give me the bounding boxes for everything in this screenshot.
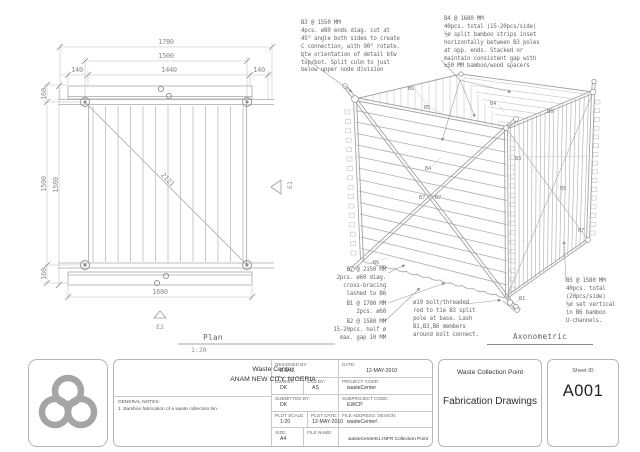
plot-scale-value: 1:20 bbox=[280, 419, 307, 425]
label-b4-top: B4 bbox=[490, 101, 496, 107]
note-b1: B1 @ 1780 MM 2pcs. ø60 bbox=[298, 301, 386, 317]
dim-1500-left: 1500 bbox=[40, 176, 48, 192]
project-code-cell: PROJECT CODE: wasteCenter bbox=[339, 378, 433, 392]
label-b4-mid: B4 bbox=[425, 166, 431, 172]
plan-title: Plan bbox=[203, 333, 223, 342]
label-b6-bottom-left: B6 bbox=[373, 260, 379, 266]
sheet-id-block: Sheet ID A001 bbox=[547, 359, 619, 447]
label-b3-right: B3 bbox=[515, 156, 521, 162]
plan-structure bbox=[58, 86, 274, 285]
drawing-sheet: 1780 1500 140 1440 140 160 1500 1580 160… bbox=[0, 0, 640, 452]
plan-elevation-markers: E2 E1 bbox=[154, 180, 294, 331]
axon-front-left-slats bbox=[356, 111, 507, 285]
plot-scale-cell: PLOT SCALE: 1:20 bbox=[272, 412, 307, 426]
label-b7-bottom-right: B7 bbox=[578, 228, 584, 234]
axonometric-title: Axonometric bbox=[487, 332, 593, 345]
plan-dim-ticks bbox=[44, 44, 275, 300]
subproject-code-label: SUBPROJECT CODE: bbox=[342, 396, 433, 401]
file-address-label: FILE ADDRESS: DESIGN: bbox=[342, 413, 433, 418]
dim-1580: 1580 bbox=[52, 177, 60, 193]
dim-1680: 1680 bbox=[152, 288, 168, 296]
dim-1500-top: 1500 bbox=[158, 52, 174, 60]
label-b5-right: B5 bbox=[560, 186, 566, 192]
general-notes-value: 1. Bamboo fabrication of a waste collect… bbox=[118, 407, 218, 412]
file-address-value: wasteCenter\ bbox=[347, 419, 433, 425]
dim-1440: 1440 bbox=[161, 66, 177, 74]
size-label: SIZE: bbox=[275, 430, 303, 435]
designed-by-value: E.U.U. bbox=[280, 368, 338, 374]
subproject-code-value: EWCP bbox=[347, 402, 433, 408]
general-notes-label: GENERAL NOTES: bbox=[118, 400, 160, 405]
sheet-id-label: Sheet ID bbox=[548, 368, 618, 374]
ckd-by-value: AS bbox=[312, 385, 338, 391]
dim-140-left: 140 bbox=[71, 66, 83, 74]
designed-by-label: DESIGNED BY: bbox=[275, 362, 338, 367]
dim-140-right: 140 bbox=[253, 66, 265, 74]
file-address-cell: FILE ADDRESS: DESIGN: wasteCenter\ bbox=[339, 412, 433, 426]
note-b7: B7 @ 2150 MM 2pcs. ø60 diag. cross-braci… bbox=[298, 267, 386, 299]
ckd-by-label: CKD BY: bbox=[307, 379, 338, 384]
size-value: A4 bbox=[280, 436, 303, 442]
file-name-label: FILE NAME: bbox=[307, 430, 433, 435]
date-cell: DATE: 12-MAY-2010 bbox=[339, 360, 433, 374]
title-block: Waste Center ANAM NEW CITY, NIGERIA GENE… bbox=[28, 359, 619, 447]
note-b3: B3 @ 1550 MM 4pcs. ø80 ends diag. cut at… bbox=[301, 20, 407, 75]
file-name-value: wasteCenterE1.INFR Collection Point bbox=[348, 437, 428, 442]
label-b7-cross-2: B7 bbox=[435, 195, 441, 201]
note-b4: B4 @ 1680 MM 40pcs. total (15-20pcs/side… bbox=[444, 16, 559, 71]
label-b6-right: B6 bbox=[547, 109, 553, 115]
dwn-by-value: DK bbox=[280, 385, 303, 391]
sheet-title-block: Waste Collection Point Fabrication Drawi… bbox=[438, 359, 542, 447]
label-b7-cross-1: B7 bbox=[419, 195, 425, 201]
plan-drawing: 1780 1500 140 1440 140 160 1500 1580 160… bbox=[0, 0, 340, 355]
axon-strip-end-stacks bbox=[345, 100, 600, 291]
plan-dim-labels: 1780 1500 140 1440 140 160 1500 1580 160… bbox=[40, 38, 265, 296]
e2-marker-triangle bbox=[154, 311, 166, 318]
plot-scale-label: PLOT SCALE: bbox=[275, 413, 307, 418]
sheet-title-main: Fabrication Drawings bbox=[439, 396, 541, 407]
plan-scale: 1:20 bbox=[191, 346, 207, 354]
project-info-block: Waste Center ANAM NEW CITY, NIGERIA GENE… bbox=[113, 359, 433, 447]
logo-box bbox=[28, 359, 108, 447]
note-bolt: ø19 bolt/threaded rod to tie B3 split po… bbox=[413, 300, 495, 340]
subproject-code-cell: SUBPROJECT CODE: EWCP bbox=[339, 395, 433, 409]
axon-back-right-hatch bbox=[445, 75, 600, 148]
plot-date-label: PLOT DATE: bbox=[311, 413, 338, 418]
submitted-by-label: SUBMITTED BY: bbox=[275, 396, 338, 401]
file-name-cell: FILE NAME: bbox=[304, 428, 433, 435]
e2-marker-label: E2 bbox=[156, 323, 164, 331]
plot-date-value: 12-MAY-2010 bbox=[312, 419, 338, 425]
axon-front-right-slats bbox=[510, 94, 588, 294]
size-cell: SIZE: A4 bbox=[272, 428, 303, 442]
plot-date-cell: PLOT DATE: 12-MAY-2010 bbox=[308, 412, 338, 426]
designed-by-cell: DESIGNED BY: E.U.U. bbox=[272, 360, 338, 374]
sheet-id-value: A001 bbox=[548, 382, 618, 401]
dwn-by-cell: DWN BY: DK bbox=[272, 378, 303, 392]
plan-dimension-lines bbox=[44, 43, 272, 300]
note-b2: B2 @ 1580 MM 15-20pcs. half ø max. gap 1… bbox=[294, 319, 386, 343]
e1-marker-triangle bbox=[271, 180, 281, 194]
plan-bolts bbox=[81, 86, 252, 285]
project-code-label: PROJECT CODE: bbox=[342, 379, 433, 384]
e1-marker-label: E1 bbox=[286, 181, 294, 189]
project-code-value: wasteCenter bbox=[347, 385, 433, 391]
label-b5-top: B5 bbox=[424, 105, 430, 111]
submitted-by-value: DK bbox=[280, 402, 338, 408]
date-label: DATE: bbox=[342, 362, 433, 367]
label-b1-bottom: B1 bbox=[519, 296, 525, 302]
trefoil-logo-icon bbox=[29, 360, 107, 446]
dwn-by-label: DWN BY: bbox=[275, 379, 303, 384]
date-value: 12-MAY-2010 bbox=[366, 368, 433, 374]
label-b6-top: B6 bbox=[408, 86, 414, 92]
dim-160-bottom: 160 bbox=[40, 268, 48, 280]
ckd-by-cell: CKD BY: AS bbox=[304, 378, 338, 392]
sheet-title-top: Waste Collection Point bbox=[439, 369, 541, 376]
submitted-by-cell: SUBMITTED BY: DK bbox=[272, 395, 338, 409]
note-b5: B5 @ 1580 MM 40pcs. total (20pcs/side) ½… bbox=[566, 278, 638, 325]
dim-1780: 1780 bbox=[158, 38, 174, 46]
dim-160-top: 160 bbox=[40, 88, 48, 100]
